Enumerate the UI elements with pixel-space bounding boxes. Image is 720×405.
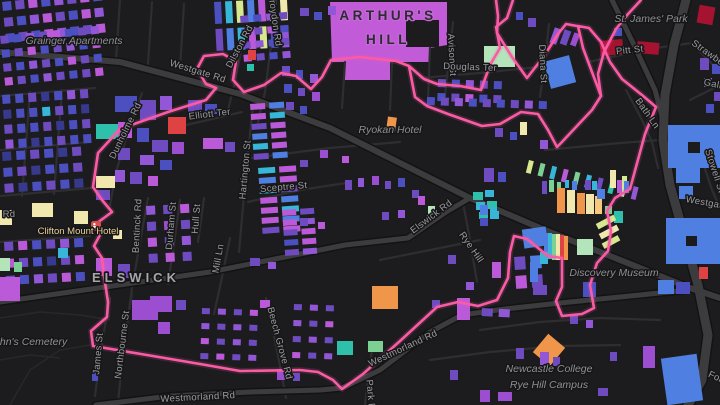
building [20,275,29,284]
building [74,178,84,188]
building [385,181,391,189]
building [225,142,235,152]
building [706,104,714,113]
building [250,310,258,316]
building [28,93,37,103]
building [82,69,91,78]
building [160,160,172,170]
building [516,12,523,20]
label-grainger-apartments: Grainger Apartments [25,35,123,47]
building [31,138,40,148]
building [511,100,519,108]
building [30,74,39,83]
building [68,10,78,20]
building [269,52,278,60]
building [240,15,249,23]
building [284,84,292,93]
building [4,77,13,86]
building [661,354,703,405]
building [130,172,142,184]
building [310,305,318,311]
building [450,370,458,380]
building [345,180,352,190]
building [564,236,568,260]
building [54,0,64,6]
building [258,167,275,174]
building [542,181,547,194]
building [0,258,10,271]
label-ryokan-hotel: Ryokan Hotel [358,124,422,136]
building [148,237,157,246]
building [592,181,597,190]
label-hill: HILL [366,32,410,47]
building [203,138,223,149]
building [676,282,690,294]
map-viewport[interactable]: Grainger ApartmentsWestgate RdARTHUR'SHI… [0,0,720,405]
building [714,92,720,101]
label-newcastle-college: Newcastle College [506,363,593,375]
building [300,8,309,16]
building [262,227,279,234]
building [1,49,10,58]
building [247,64,254,71]
building [45,164,55,174]
building [285,249,299,256]
building [498,392,512,401]
building [293,320,301,326]
building [217,324,225,330]
building [60,239,69,248]
building [248,50,256,60]
building [473,192,483,200]
building [688,142,700,153]
building [325,337,333,343]
building [146,206,155,215]
building [217,339,225,345]
building [216,354,224,360]
building [658,280,674,294]
building [528,18,536,27]
label-diana-st: Diana St [536,44,549,83]
building [74,238,83,247]
building [202,308,210,314]
building [80,55,89,64]
building [533,285,547,295]
building [586,194,594,214]
building [16,62,25,71]
building [281,195,298,202]
building [18,241,27,250]
building [697,5,716,26]
building [58,248,68,258]
building [30,149,40,159]
building [176,300,186,310]
building [29,60,38,69]
building [46,180,56,190]
building [58,147,68,157]
label-rd: Rd [3,209,16,220]
label-clifton-mount-hotel: Clifton Mount Hotel [38,226,119,237]
building [4,183,14,193]
building [292,352,300,358]
building [271,132,286,139]
building [2,94,11,104]
building [283,229,297,236]
map-canvas[interactable]: Grainger ApartmentsWestgate RdARTHUR'SHI… [0,0,720,405]
building [95,67,104,76]
building [18,138,27,148]
building [215,29,223,51]
building [30,123,39,133]
building [520,122,527,135]
building [597,189,605,199]
building [484,168,494,182]
building [510,132,517,140]
building [165,253,174,262]
building [255,40,264,48]
label-st-james-park: St. James' Park [614,13,688,25]
building [308,353,316,359]
building [282,51,291,59]
label-douglas-ter: Douglas Ter [443,61,497,74]
building [74,211,88,224]
building [260,197,277,204]
building [172,142,184,154]
building [140,155,154,165]
building [62,273,71,282]
building [72,146,82,156]
building [2,151,12,161]
building [149,253,158,262]
building [586,320,593,328]
building [48,273,57,282]
building [17,76,26,85]
building [152,140,168,152]
building [17,123,26,133]
building [530,262,538,282]
building [248,355,256,361]
building [480,218,488,226]
building [480,205,488,215]
building [482,308,493,317]
arthurs-hill-notch [406,20,439,47]
building [398,178,405,187]
building [492,262,501,278]
building [261,217,278,224]
building [59,163,69,173]
building [147,222,156,231]
building [18,182,28,192]
building [41,92,50,102]
building [284,239,298,246]
building [256,53,265,61]
building [41,0,51,7]
building [382,212,389,220]
building [483,99,491,107]
building [4,124,13,134]
building [150,296,172,312]
building [3,109,12,119]
building [418,196,425,205]
building [643,346,655,368]
building [686,236,697,246]
building [283,219,297,226]
building [309,337,317,343]
building [279,165,296,172]
building [309,321,317,327]
building [572,181,577,190]
building [0,35,9,44]
building [610,170,616,188]
building [54,91,63,101]
building [298,88,305,96]
building [182,252,191,261]
building [44,137,53,147]
building [76,272,85,281]
building [16,150,26,160]
label-john-s-cemetery: John's Cemetery [0,336,68,348]
building [497,99,505,107]
building [253,143,268,150]
label-park-rd: Park Rd [363,379,377,405]
building [93,53,102,62]
building [15,94,24,104]
building [17,166,27,176]
building [254,27,263,35]
building [83,134,92,144]
building [314,12,322,20]
building [27,46,36,55]
building [326,305,334,311]
building [55,106,64,116]
building [43,122,52,132]
building [549,180,554,192]
building [540,140,548,149]
building [160,96,172,110]
building [94,7,104,17]
building [3,63,12,72]
building [282,209,296,216]
building [13,34,22,43]
building [115,170,125,182]
building [303,248,317,255]
building [47,256,56,265]
building [67,90,76,100]
building [312,92,320,101]
building [441,97,449,105]
building [55,58,64,67]
building [300,208,314,215]
building [577,193,585,214]
building [495,128,503,137]
building [300,106,307,114]
building [494,81,502,89]
building [17,16,27,26]
building [250,103,265,110]
building [250,258,260,266]
building [14,262,22,272]
building [293,336,301,342]
building [268,262,276,269]
building [516,348,524,359]
building [466,282,474,290]
building [253,14,262,22]
building [249,340,257,346]
building [300,218,308,226]
building [81,9,91,19]
building [598,388,608,396]
building [68,56,77,65]
building [368,341,383,352]
building [676,163,700,183]
building [42,107,51,117]
building [294,304,302,310]
building [214,2,222,24]
label-elswick: ELSWICK [92,270,180,285]
building [91,26,100,35]
label-discovery-museum: Discovery Museum [569,267,659,279]
building [0,277,20,301]
building [270,122,285,129]
building [148,176,158,186]
building [69,120,78,130]
building [73,162,83,172]
building [320,150,328,158]
building [251,123,266,130]
building [325,321,333,327]
building [28,0,38,8]
building [158,322,170,334]
building [485,190,494,197]
building [480,390,490,402]
building [29,108,38,118]
building [34,274,43,283]
building [3,167,13,177]
building [4,17,14,27]
building [43,73,52,82]
building [5,139,14,149]
building [33,257,42,266]
building [302,238,316,245]
building [269,102,284,109]
building [577,239,593,255]
building [81,104,90,114]
building [300,160,308,167]
building [372,286,398,309]
building [96,176,115,188]
building [514,256,526,270]
building [182,236,191,245]
building [499,309,510,318]
building [699,267,708,279]
building [80,89,89,99]
building [168,117,186,134]
label-rye-hill-campus: Rye Hill Campus [510,379,589,391]
building [557,188,565,213]
building [318,222,325,229]
building [57,136,66,146]
building [249,325,257,331]
building [14,48,23,57]
building [218,309,226,315]
building [234,309,242,315]
building [180,204,189,213]
building [539,101,547,109]
building [448,255,456,264]
building [412,190,419,198]
building [75,255,84,264]
building [69,70,78,79]
building [15,0,25,10]
building [4,242,13,251]
label-arthur-s: ARTHUR'S [339,8,436,23]
building [55,12,65,22]
building [181,220,190,229]
building [301,228,315,235]
building [567,190,575,213]
building [30,14,40,24]
building [56,121,65,131]
building [515,275,527,289]
building [565,180,569,188]
building [44,148,54,158]
building [614,211,623,223]
building [455,98,463,106]
building [82,119,91,129]
building [490,207,497,216]
building [70,135,79,145]
building [137,128,149,142]
building [469,98,477,106]
building [270,112,285,119]
building [32,203,53,217]
building [251,113,266,120]
building [498,172,506,182]
building [261,207,278,214]
building [46,239,55,248]
building [60,179,70,189]
building [2,1,12,11]
building [68,105,77,115]
building [56,71,65,80]
building [32,240,41,249]
building [232,354,240,360]
building [272,142,287,149]
building [358,178,364,187]
building [225,1,233,23]
building [31,165,41,175]
building [201,323,209,329]
building [324,353,332,359]
building [233,339,241,345]
building [42,59,51,68]
building [328,6,336,15]
building [585,180,591,190]
building [398,210,405,218]
building [252,133,267,140]
building [16,108,25,118]
building [342,156,349,163]
building [233,324,241,330]
building [610,352,617,361]
building [201,338,209,344]
building [337,341,353,355]
building [200,353,208,359]
building [253,153,268,160]
building [286,102,294,110]
building [42,13,52,23]
building [372,176,379,185]
